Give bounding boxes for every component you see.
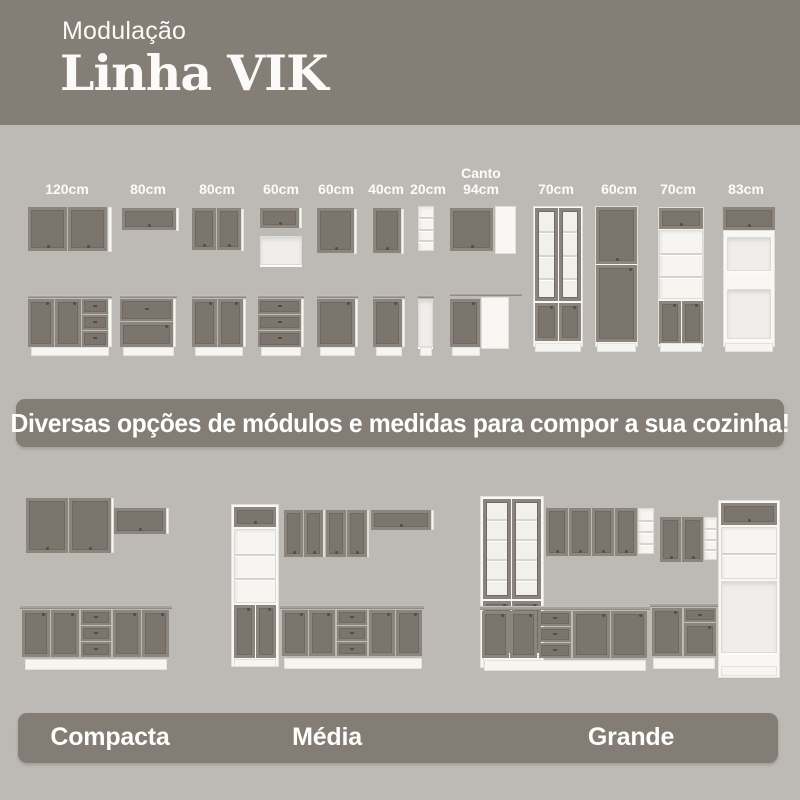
drawer-front <box>81 610 111 625</box>
cabinet-door <box>120 322 173 347</box>
plinth <box>653 658 715 669</box>
cabinet-door <box>26 498 68 553</box>
size-label-70cm: 70cm <box>538 181 574 197</box>
kitchen-label-compacta: Compacta <box>50 723 169 752</box>
page-title: Linha VIK <box>60 44 328 102</box>
drawer-front <box>82 315 108 330</box>
open-shelf <box>721 527 777 579</box>
carcass-panel <box>323 510 325 557</box>
shelf-line <box>563 255 577 257</box>
module-wall-40cm <box>373 208 404 254</box>
cabinet-door <box>546 508 568 556</box>
cabinet-door <box>369 610 395 656</box>
carcass-panel <box>431 510 434 530</box>
size-label-80cm-2: 80cm <box>199 181 235 197</box>
carcass-panel <box>401 209 404 254</box>
cabinet-door <box>723 207 775 230</box>
cabinet-door <box>721 503 777 525</box>
cabinet-door <box>596 207 637 264</box>
shelf-line <box>705 549 716 551</box>
plinth <box>123 347 174 356</box>
shelf-line <box>705 528 716 530</box>
countertop <box>418 295 434 298</box>
cabinet-door <box>68 207 107 251</box>
cabinet-door <box>142 610 169 657</box>
carcass-panel <box>495 206 516 254</box>
drawer-front <box>82 299 108 314</box>
module-open-shelf-20cm <box>418 206 434 251</box>
size-label-40cm: 40cm <box>368 181 404 197</box>
shelf-line <box>419 240 433 242</box>
cabinet-door <box>659 301 681 344</box>
plinth <box>284 658 422 669</box>
cabinet-door <box>450 208 493 251</box>
cabinet-door <box>659 208 703 229</box>
cabinet-door <box>482 611 509 658</box>
size-label-60cm-3: 60cm <box>601 181 637 197</box>
carcass-panel <box>402 299 405 347</box>
cabinet-door <box>682 517 703 562</box>
module-wall-80cm <box>192 208 244 251</box>
plinth <box>234 659 276 667</box>
module-base-80cm <box>192 295 246 356</box>
cabinet-door <box>510 611 537 658</box>
module-base-40cm <box>373 295 405 356</box>
page-header: Modulação Linha VIK <box>0 0 800 125</box>
cabinet-door <box>326 510 346 557</box>
cabinet-door <box>573 611 610 658</box>
carcass-panel <box>166 508 169 534</box>
cabinet-door <box>51 610 79 657</box>
cabinet-door <box>69 498 111 553</box>
cabinet-door <box>217 208 241 250</box>
cabinet-door <box>114 508 166 534</box>
drawer-front <box>337 610 367 625</box>
plinth <box>320 347 355 356</box>
countertop <box>28 295 112 298</box>
countertop <box>258 295 304 298</box>
cabinet-door <box>260 208 299 228</box>
module-wall-120cm <box>28 207 112 253</box>
glass-door <box>535 208 558 301</box>
open-compartment <box>727 289 771 341</box>
plinth <box>484 660 646 671</box>
module-flip-60cm <box>260 208 302 228</box>
drawer-front <box>539 611 571 626</box>
cabinet-door <box>559 303 581 341</box>
cabinet-door <box>192 208 216 250</box>
cabinet-door <box>22 610 50 657</box>
shelf-line <box>487 559 507 561</box>
promo-banner: Diversas opções de módulos e medidas par… <box>16 399 784 447</box>
page: Modulação Linha VIK 120cm 80cm 80cm 60cm… <box>0 0 800 800</box>
open-shelf <box>418 206 434 251</box>
shelf-line <box>539 255 554 257</box>
plinth <box>25 659 167 670</box>
size-label-canto-94cm: Canto 94cm <box>461 165 501 197</box>
size-label-20cm: 20cm <box>410 181 446 197</box>
plinth <box>452 347 480 356</box>
module-base-120cm <box>28 295 112 356</box>
cabinet-door <box>396 610 422 656</box>
module-open-box-60cm <box>260 236 302 265</box>
drawer-front <box>120 299 173 321</box>
shelf-line <box>563 278 577 280</box>
carcass-panel <box>299 208 302 228</box>
cabinet-door <box>309 610 335 656</box>
cabinet-door <box>652 608 682 656</box>
kitchen-grande <box>468 488 790 688</box>
shelf-line <box>419 229 433 231</box>
countertop <box>20 605 172 609</box>
module-tall-60cm <box>595 206 640 353</box>
shelf-line <box>487 579 507 581</box>
cabinet-door <box>304 510 323 557</box>
drawer-front <box>539 627 571 642</box>
module-wall-60cm <box>317 208 357 254</box>
glass-door <box>559 208 581 301</box>
carcass-panel <box>173 299 176 347</box>
size-label-60cm-2: 60cm <box>318 181 354 197</box>
carcass-panel <box>354 209 357 254</box>
carcass-panel <box>108 299 112 347</box>
module-corner-wall-94cm <box>450 206 516 254</box>
plinth <box>420 347 432 356</box>
cabinet-door <box>682 301 703 344</box>
module-corner-base-94cm <box>450 293 522 356</box>
cabinet-door <box>373 299 402 347</box>
cabinet-door <box>684 623 716 656</box>
carcass-panel <box>241 209 244 251</box>
cabinet-door <box>535 303 558 341</box>
cabinet-door <box>282 610 308 656</box>
glass-door <box>512 499 541 599</box>
shelf-line <box>235 554 275 556</box>
shelf-line <box>660 276 702 278</box>
module-base-80cm-drawer <box>120 295 177 356</box>
cabinet-door <box>234 605 255 658</box>
drawer-front <box>258 331 301 347</box>
drawer-front <box>337 642 367 656</box>
plinth <box>725 343 773 352</box>
cabinet-door <box>569 508 591 556</box>
cabinet-door <box>28 299 54 347</box>
carcass-panel <box>108 207 112 252</box>
cabinet-door <box>218 299 243 347</box>
module-base-60cm-drawers <box>258 295 304 356</box>
countertop <box>480 606 650 610</box>
cabinet-door <box>284 510 303 557</box>
plinth <box>376 347 402 356</box>
cabinet-door <box>596 265 637 342</box>
size-label-70cm-2: 70cm <box>660 181 696 197</box>
size-label-80cm: 80cm <box>130 181 166 197</box>
kitchen-media <box>228 498 450 686</box>
size-label-83cm: 83cm <box>728 181 764 197</box>
kitchen-label-media: Média <box>292 723 362 752</box>
plinth <box>535 343 581 352</box>
open-compartment <box>260 236 302 267</box>
drawer-front <box>81 642 111 657</box>
kitchen-sizes-band: Compacta Média Grande <box>18 713 778 763</box>
drawer-front <box>539 643 571 658</box>
carcass-panel <box>481 297 509 349</box>
kitchen-label-grande: Grande <box>588 723 674 752</box>
cabinet-door <box>122 208 176 230</box>
plinth <box>31 347 109 356</box>
carcass-panel <box>367 510 369 557</box>
cabinet-door <box>347 510 367 557</box>
shelf-line <box>639 531 653 533</box>
shelf-line <box>516 539 537 541</box>
drawer-front <box>258 315 301 330</box>
drawer-front <box>337 626 367 641</box>
glass-door <box>483 499 511 599</box>
open-shelf <box>234 529 276 603</box>
cabinet-door <box>611 611 647 658</box>
module-base-20cm-open <box>418 295 434 356</box>
drawer-front <box>81 626 111 641</box>
shelf-line <box>705 539 716 541</box>
open-shelf <box>659 230 703 299</box>
cabinet-door <box>317 208 354 253</box>
carcass-panel <box>301 299 304 347</box>
cabinet-door <box>317 299 355 347</box>
cabinet-door <box>234 507 276 527</box>
cabinet-door <box>55 299 81 347</box>
promo-banner-text: Diversas opções de módulos e medidas par… <box>10 408 789 439</box>
drawer-front <box>684 608 716 622</box>
shelf-line <box>516 559 537 561</box>
countertop <box>120 295 177 298</box>
shelf-line <box>722 553 776 555</box>
module-tall-70cm-open <box>658 207 706 353</box>
size-label-120cm: 120cm <box>45 181 89 197</box>
countertop <box>280 605 424 609</box>
shelf-line <box>539 231 554 233</box>
open-shelf <box>638 508 654 554</box>
shelf-line <box>487 519 507 521</box>
cabinet-door <box>28 207 67 251</box>
plinth <box>261 347 301 356</box>
shelf-line <box>539 278 554 280</box>
cabinet-door <box>615 508 637 556</box>
open-compartment <box>721 581 777 655</box>
module-tall-70cm-glass <box>533 206 585 353</box>
carcass-panel <box>176 208 179 231</box>
plinth <box>660 343 702 352</box>
countertop <box>192 295 246 298</box>
cabinet-door <box>660 517 681 562</box>
cabinet-door <box>450 299 480 347</box>
countertop <box>650 603 718 607</box>
shelf-line <box>516 579 537 581</box>
carcass-panel <box>243 299 246 347</box>
plinth <box>195 347 243 356</box>
open-compartment <box>418 299 433 349</box>
cabinet-door <box>113 610 141 657</box>
countertop <box>317 295 358 298</box>
shelf-line <box>563 231 577 233</box>
open-shelf <box>704 517 717 560</box>
shelf-line <box>660 253 702 255</box>
cabinet-door <box>192 299 217 347</box>
module-base-60cm <box>317 295 358 356</box>
shelf-line <box>639 520 653 522</box>
cabinet-door <box>256 605 276 658</box>
drawer-front <box>82 331 108 347</box>
countertop <box>450 293 522 296</box>
drawer-front <box>258 299 301 314</box>
kitchen-compacta <box>20 493 172 679</box>
plinth <box>721 666 777 676</box>
module-tall-83cm-tower <box>723 207 777 353</box>
carcass-panel <box>355 299 358 347</box>
shelf-line <box>639 543 653 545</box>
header-kicker: Modulação <box>62 17 186 46</box>
module-flip-80cm <box>122 208 180 232</box>
cabinet-door <box>371 510 431 530</box>
plinth <box>597 343 636 352</box>
cabinet-door <box>373 208 401 253</box>
open-compartment <box>727 237 771 273</box>
shelf-line <box>419 217 433 219</box>
size-label-60cm: 60cm <box>263 181 299 197</box>
countertop <box>373 295 405 298</box>
cabinet-door <box>592 508 614 556</box>
shelf-line <box>487 539 507 541</box>
shelf-line <box>235 578 275 580</box>
shelf-line <box>516 519 537 521</box>
